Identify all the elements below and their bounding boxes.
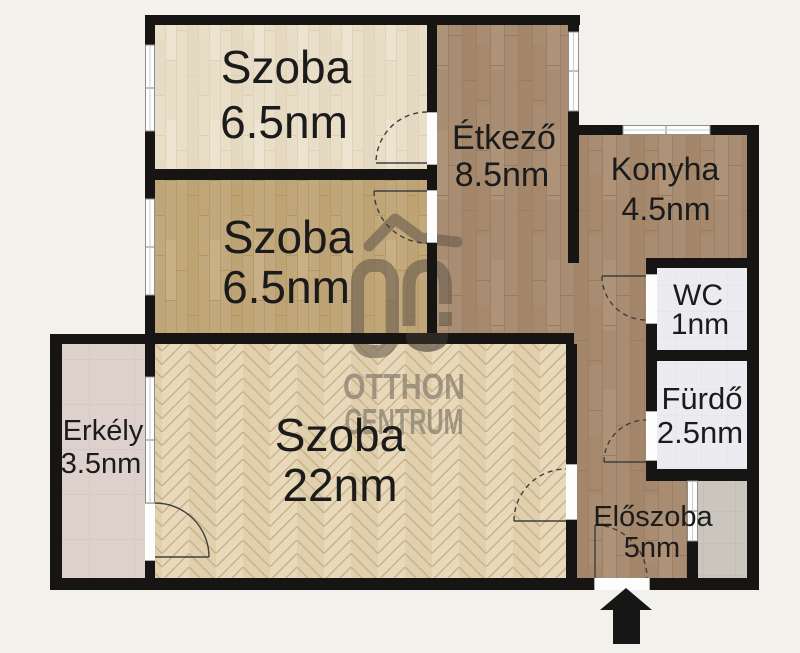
svg-text:Étkező: Étkező	[452, 119, 556, 157]
svg-text:3.5nm: 3.5nm	[61, 448, 142, 480]
svg-text:Szoba: Szoba	[221, 41, 352, 93]
svg-text:4.5nm: 4.5nm	[622, 191, 711, 227]
svg-text:6.5nm: 6.5nm	[222, 261, 350, 313]
svg-text:8.5nm: 8.5nm	[455, 156, 550, 194]
svg-text:5nm: 5nm	[624, 532, 680, 564]
svg-text:Fürdő: Fürdő	[662, 381, 743, 416]
svg-text:6.5nm: 6.5nm	[220, 96, 348, 148]
svg-text:Erkély: Erkély	[63, 415, 144, 447]
svg-text:2.5nm: 2.5nm	[657, 415, 743, 450]
svg-text:Konyha: Konyha	[611, 151, 720, 187]
svg-text:Szoba: Szoba	[275, 409, 406, 461]
svg-text:Előszoba: Előszoba	[593, 501, 713, 533]
svg-text:22nm: 22nm	[282, 459, 397, 511]
svg-text:Szoba: Szoba	[223, 211, 354, 263]
svg-text:1nm: 1nm	[671, 308, 729, 341]
